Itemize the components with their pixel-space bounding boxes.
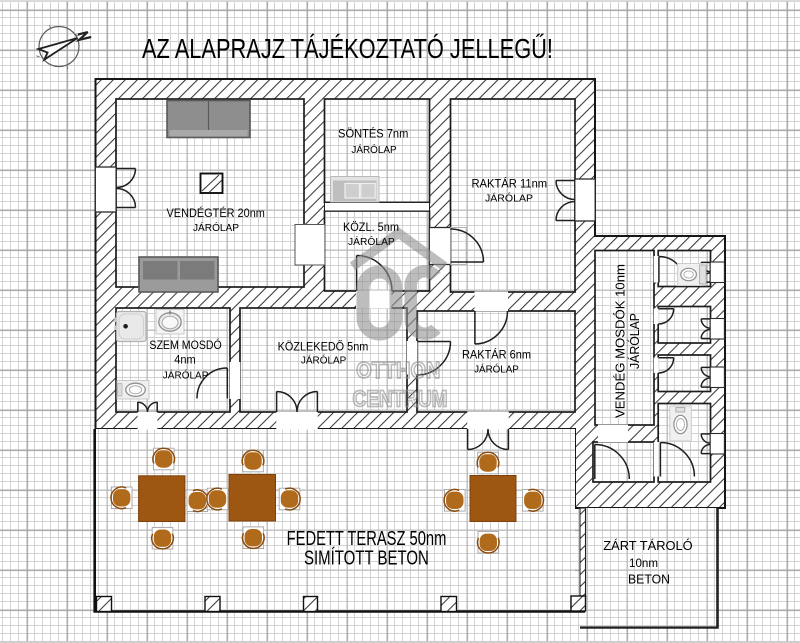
svg-text:AZ ALAPRAJZ TÁJÉKOZTATÓ JELLEG: AZ ALAPRAJZ TÁJÉKOZTATÓ JELLEGŰ!: [142, 33, 553, 64]
svg-text:VENDÉGTÉR 20nm: VENDÉGTÉR 20nm: [167, 207, 265, 220]
svg-text:JÁRÓLAP: JÁRÓLAP: [627, 313, 642, 369]
svg-text:JÁRÓLAP: JÁRÓLAP: [163, 369, 209, 382]
svg-text:JÁRÓLAP: JÁRÓLAP: [351, 143, 396, 156]
svg-text:10nm: 10nm: [629, 556, 658, 570]
svg-text:KÖZL. 5nm: KÖZL. 5nm: [343, 222, 399, 234]
svg-text:BETON: BETON: [628, 573, 670, 587]
svg-text:ZÁRT TÁROLÓ: ZÁRT TÁROLÓ: [603, 538, 692, 553]
svg-text:VENDÉG MOSDÓK 10nm: VENDÉG MOSDÓK 10nm: [612, 264, 627, 418]
svg-text:JÁRÓLAP: JÁRÓLAP: [193, 221, 239, 234]
svg-text:JÁRÓLAP: JÁRÓLAP: [301, 354, 347, 367]
svg-text:KÖZLEKEDŐ 5nm: KÖZLEKEDŐ 5nm: [278, 340, 369, 354]
svg-text:RAKTÁR 11nm: RAKTÁR 11nm: [471, 178, 547, 191]
svg-text:SÖNTÉS 7nm: SÖNTÉS 7nm: [338, 128, 408, 141]
svg-text:OTTHON: OTTHON: [356, 357, 440, 383]
svg-text:SZEM MOSDÓ: SZEM MOSDÓ: [149, 339, 221, 352]
svg-text:JÁRÓLAP: JÁRÓLAP: [474, 362, 519, 375]
svg-text:RAKTÁR 6nm: RAKTÁR 6nm: [462, 348, 531, 361]
svg-text:JÁRÓLAP: JÁRÓLAP: [485, 192, 533, 205]
svg-text:CENTRUM: CENTRUM: [353, 386, 448, 412]
svg-text:4nm: 4nm: [174, 355, 196, 367]
svg-text:SIMÍTOTT BETON: SIMÍTOTT BETON: [304, 547, 429, 570]
svg-text:JÁRÓLAP: JÁRÓLAP: [348, 235, 395, 248]
